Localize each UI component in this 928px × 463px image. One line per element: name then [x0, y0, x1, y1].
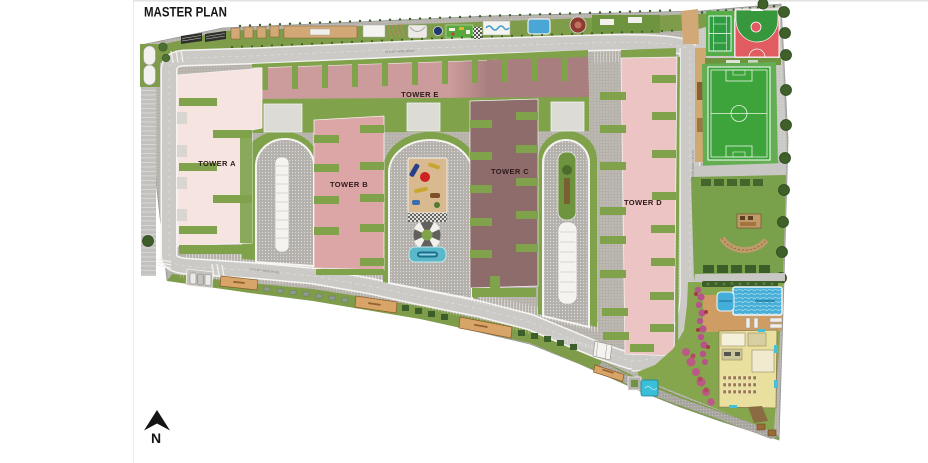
- svg-text:N: N: [151, 430, 161, 446]
- svg-text:TOWER C: TOWER C: [491, 167, 529, 176]
- svg-text:24.0 MT. WIDE ROAD: 24.0 MT. WIDE ROAD: [691, 150, 695, 181]
- svg-text:TOWER A: TOWER A: [198, 159, 236, 168]
- svg-text:TOWER D: TOWER D: [624, 198, 662, 207]
- svg-text:TOWER E: TOWER E: [401, 90, 439, 99]
- svg-text:MASTER PLAN: MASTER PLAN: [144, 3, 227, 19]
- svg-text:TOWER B: TOWER B: [330, 180, 368, 189]
